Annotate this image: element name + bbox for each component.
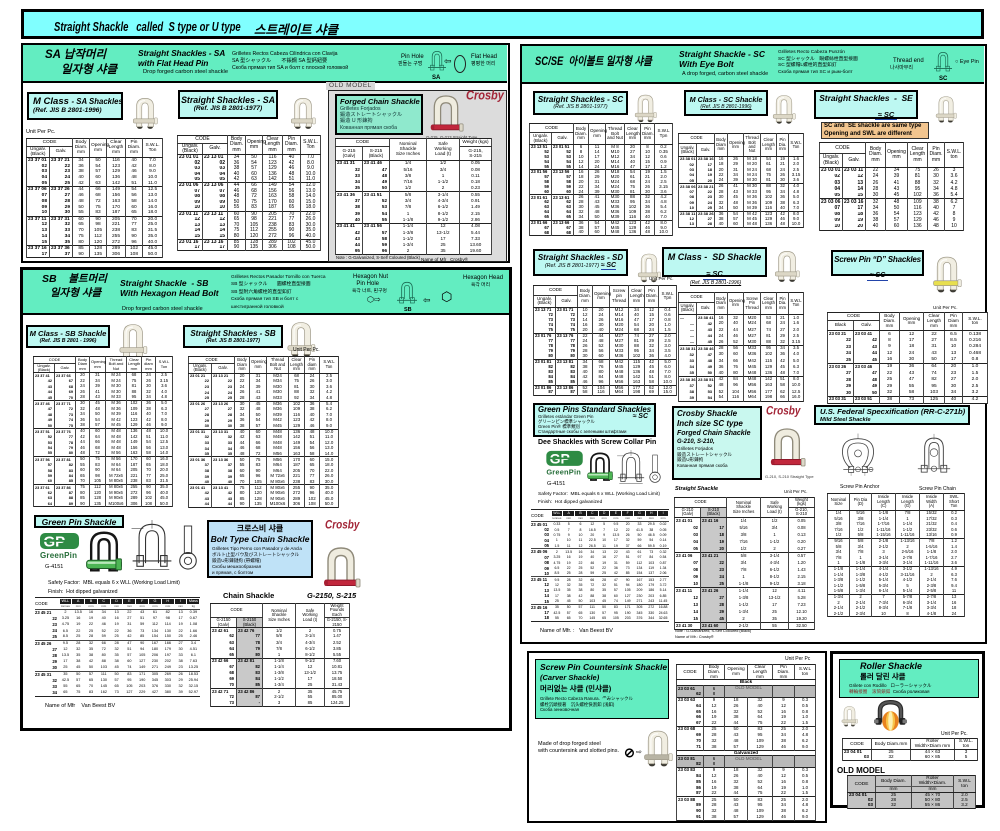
svg-text:GreenPin: GreenPin xyxy=(546,467,581,476)
svg-text:GP: GP xyxy=(44,534,66,551)
svg-text:GreenPin: GreenPin xyxy=(40,551,77,560)
